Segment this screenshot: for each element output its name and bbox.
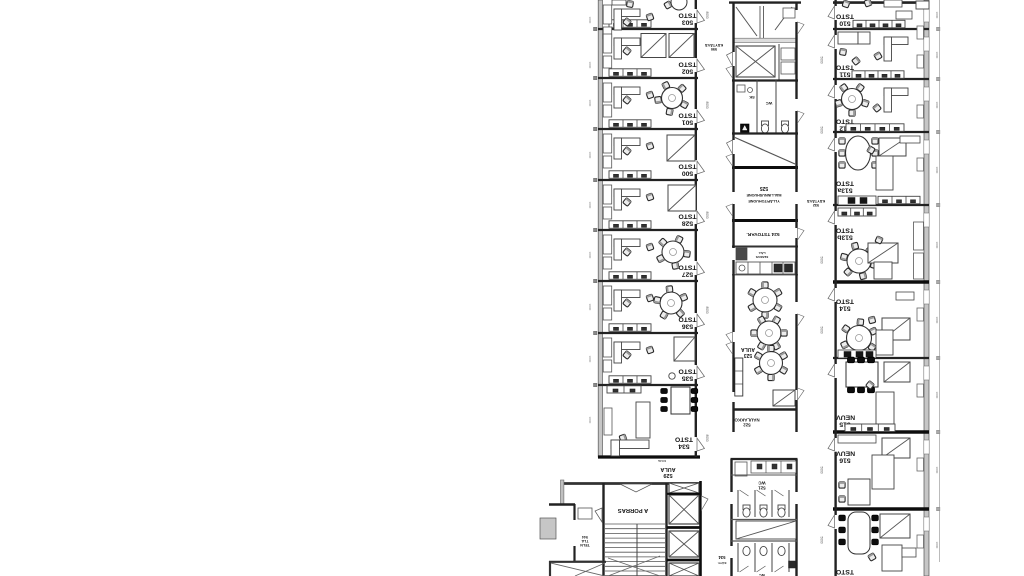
svg-text:514: 514 [839,305,851,312]
svg-text:NAULAKKO: NAULAKKO [734,418,760,423]
svg-text:3000: 3000 [588,100,592,107]
svg-text:3000: 3000 [588,304,592,311]
svg-text:510: 510 [839,20,851,27]
svg-text:TSTO: TSTO [678,162,696,169]
svg-text:513b: 513b [837,234,853,241]
svg-text:TSTO: TSTO [836,117,854,124]
svg-text:3000: 3000 [935,392,939,399]
svg-text:TSTO: TSTO [836,63,854,70]
svg-text:TSTO: TSTO [678,111,696,118]
svg-text:532: 532 [813,203,819,207]
svg-text:TSTO: TSTO [678,11,696,18]
svg-text:3000: 3000 [935,317,939,324]
svg-text:WC: WC [758,481,766,486]
svg-text:525: 525 [760,185,769,191]
svg-text:3000: 3000 [588,17,592,24]
svg-text:503: 503 [682,19,694,26]
svg-text:LÄH.: LÄH. [758,251,765,255]
svg-text:3000: 3000 [935,102,939,109]
svg-text:8000: 8000 [705,101,709,108]
svg-text:5000: 5000 [820,126,824,133]
svg-text:8000: 8000 [705,211,709,218]
svg-text:5000: 5000 [820,56,824,63]
svg-text:SK: SK [749,95,755,100]
svg-text:AULA: AULA [660,466,675,472]
svg-text:NEUV.: NEUV. [835,413,855,420]
svg-text:TSTO: TSTO [836,12,854,19]
svg-text:3000: 3000 [588,152,592,159]
svg-text:8000: 8000 [705,11,709,18]
svg-text:3000: 3000 [588,417,592,424]
svg-text:TSTO: TSTO [836,297,854,304]
svg-text:550: 550 [711,47,717,51]
svg-text:3000: 3000 [935,242,939,249]
svg-text:3000: 3000 [935,467,939,474]
svg-text:3000: 3000 [935,167,939,174]
svg-text:536: 536 [682,323,694,330]
svg-text:502: 502 [682,68,694,75]
svg-text:535: 535 [682,375,694,382]
svg-text:534: 534 [718,555,726,560]
svg-text:A PORRAS: A PORRAS [618,507,649,513]
svg-text:3000: 3000 [588,202,592,209]
svg-text:MALLINNUSHUONE: MALLINNUSHUONE [746,193,782,197]
svg-text:5000: 5000 [820,536,824,543]
svg-text:500: 500 [682,170,694,177]
svg-text:KÄYT.: KÄYT. [718,561,727,565]
svg-text:TSTO: TSTO [678,263,696,270]
svg-text:WC: WC [766,101,773,106]
svg-text:TSTO: TSTO [836,226,854,233]
svg-text:TSTO: TSTO [836,179,854,186]
svg-text:KÄYTÄVÄ: KÄYTÄVÄ [807,199,826,203]
svg-text:529: 529 [663,472,672,478]
svg-text:3000: 3000 [588,356,592,363]
svg-text:KOJE: KOJE [658,459,666,463]
svg-text:3000: 3000 [588,252,592,259]
svg-text:501: 501 [682,119,694,126]
svg-text:534: 534 [678,443,690,450]
svg-text:527: 527 [682,271,694,278]
svg-text:TSTO: TSTO [836,568,854,575]
svg-text:3000: 3000 [935,542,939,549]
svg-text:524 TSTOVAR.: 524 TSTOVAR. [746,231,779,237]
svg-text:AULA: AULA [741,346,755,352]
svg-text:NEUV.: NEUV. [835,449,855,456]
svg-text:516: 516 [839,457,851,464]
svg-text:3000: 3000 [588,62,592,69]
svg-text:KESKUS: KESKUS [756,255,769,259]
svg-text:TSTO: TSTO [678,367,696,374]
svg-text:3000: 3000 [935,52,939,59]
svg-text:544: 544 [582,535,588,539]
svg-text:511: 511 [839,71,850,78]
svg-text:528: 528 [682,220,694,227]
svg-text:YLLÄPITOHUONE: YLLÄPITOHUONE [748,199,780,203]
svg-text:8000: 8000 [705,306,709,313]
svg-text:5000: 5000 [820,466,824,473]
svg-text:3000: 3000 [935,12,939,19]
svg-text:KÄYTÄVÄ: KÄYTÄVÄ [705,43,724,47]
svg-text:5000: 5000 [820,256,824,263]
svg-text:TSTO: TSTO [675,435,693,442]
svg-text:8000: 8000 [705,434,709,441]
svg-text:TSTO: TSTO [678,60,696,67]
svg-text:5000: 5000 [820,326,824,333]
svg-text:TSTO: TSTO [678,212,696,219]
svg-text:513a: 513a [837,187,852,194]
